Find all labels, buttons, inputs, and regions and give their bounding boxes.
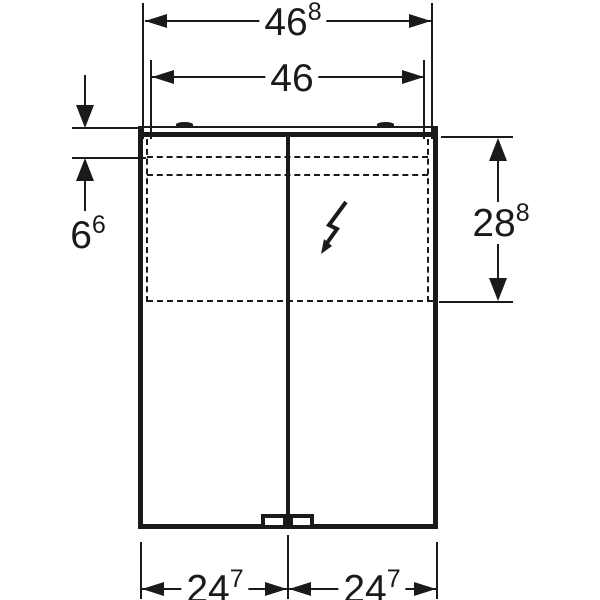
arrowhead-288-up (489, 138, 507, 161)
hinge-bump-left (176, 122, 193, 127)
handle-right (289, 514, 314, 529)
arrowhead-247L-right (265, 582, 287, 596)
hidden-edge-right (427, 139, 429, 302)
hidden-edge-shelf (147, 300, 433, 302)
dim-left-offset-label: 66 (65, 214, 111, 256)
arrowhead-247L-left (142, 582, 164, 596)
arrowhead-468-right (409, 14, 431, 28)
dim-bottom-left-label: 247 (181, 568, 248, 600)
dim-line-66-lower-tail (84, 179, 86, 211)
dim-bottom-right-label: 247 (338, 568, 405, 600)
hidden-edge-left (146, 139, 148, 302)
arrowhead-66-down (76, 105, 94, 128)
ext-line-468-left (142, 3, 144, 139)
arrowhead-66-up (76, 158, 94, 181)
dim-top-outer-label: 468 (259, 1, 326, 43)
arrowhead-46-right (402, 70, 424, 84)
arrowhead-468-left (145, 14, 167, 28)
ext-line-468-right (431, 3, 433, 139)
technical-drawing-canvas: 468 46 66 288 247 247 (0, 0, 600, 600)
handle-left (261, 514, 287, 529)
arrowhead-288-down (489, 278, 507, 301)
ext-line-247-right (436, 542, 438, 599)
hinge-bump-right (377, 122, 394, 127)
lightning-bolt-icon (315, 198, 355, 256)
door-divider (286, 137, 290, 529)
ext-line-288-bottom (439, 301, 513, 303)
dim-top-inner-label: 46 (265, 57, 318, 99)
arrowhead-46-left (152, 70, 174, 84)
arrowhead-247R-left (289, 582, 311, 596)
dim-right-height-label: 288 (467, 202, 534, 244)
arrowhead-247R-right (414, 582, 436, 596)
